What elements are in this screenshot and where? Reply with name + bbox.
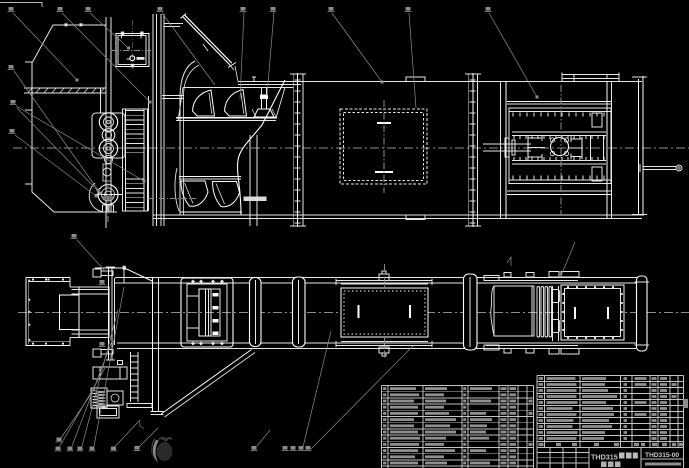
svg-text:THD315-00: THD315-00 bbox=[645, 452, 679, 459]
svg-text:THD315: THD315 bbox=[591, 453, 618, 462]
